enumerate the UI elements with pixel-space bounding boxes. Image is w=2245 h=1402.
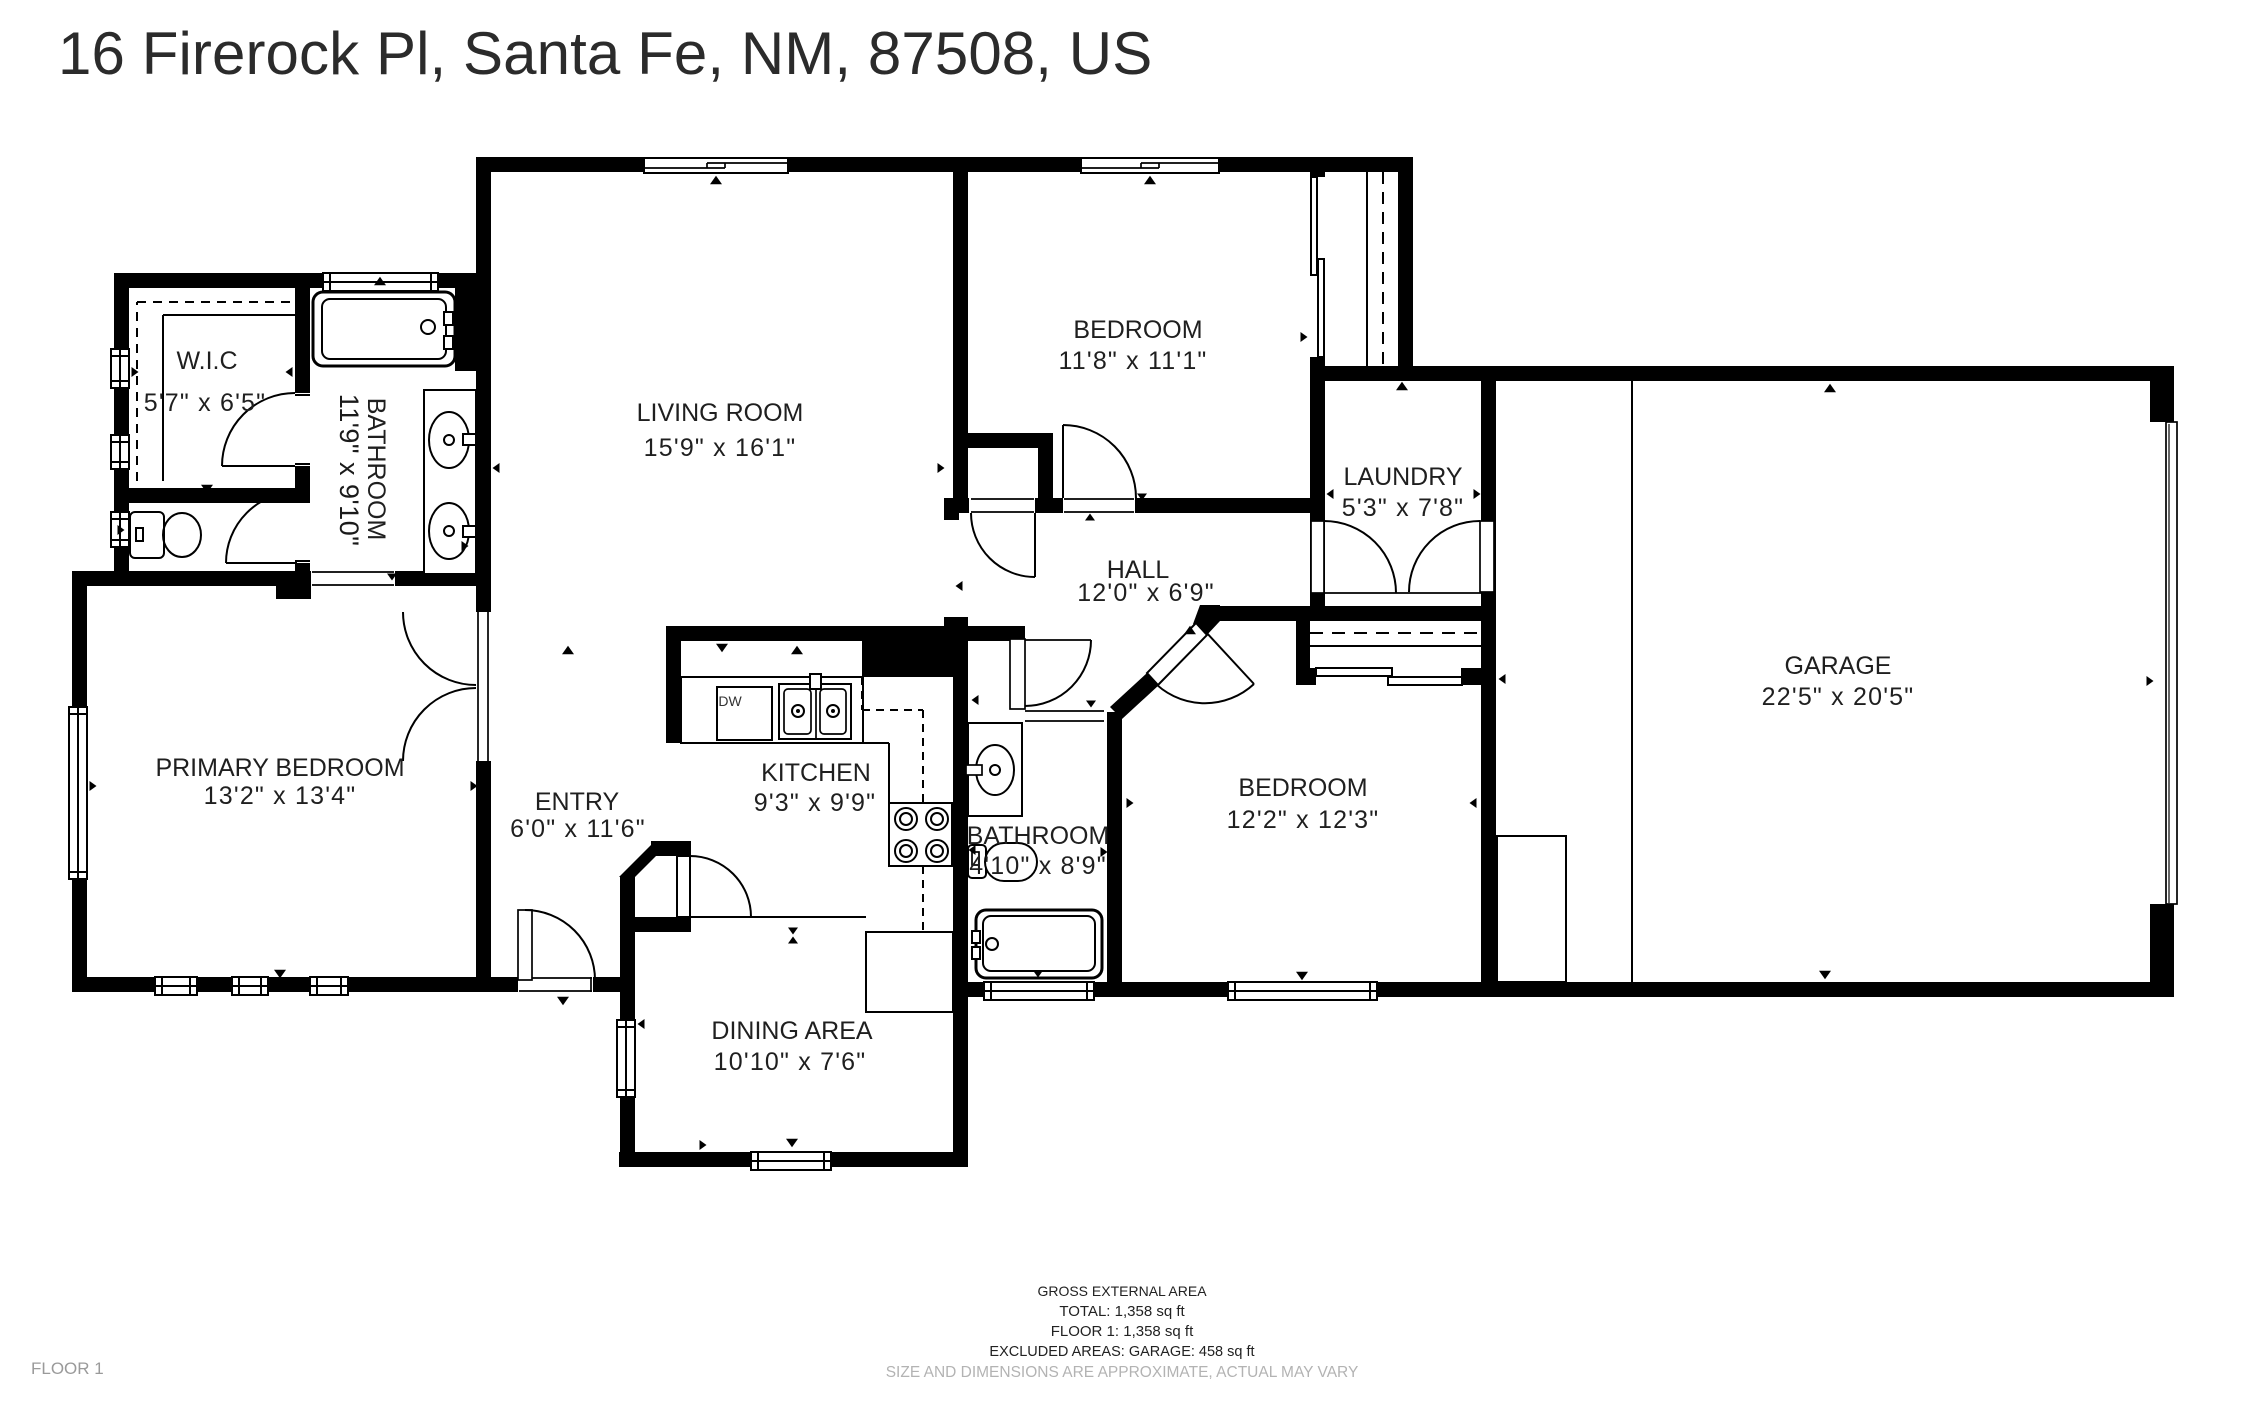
svg-text:DINING AREA: DINING AREA <box>711 1017 872 1045</box>
svg-text:FLOOR 1: 1,358 sq ft: FLOOR 1: 1,358 sq ft <box>1051 1323 1194 1340</box>
svg-text:5'3" x 7'8": 5'3" x 7'8" <box>1342 494 1465 522</box>
svg-text:16 Firerock Pl, Santa Fe, NM,: 16 Firerock Pl, Santa Fe, NM, 87508, US <box>58 20 1152 87</box>
svg-text:BEDROOM: BEDROOM <box>1073 316 1202 344</box>
svg-text:BEDROOM: BEDROOM <box>1238 774 1367 802</box>
svg-text:22'5" x 20'5": 22'5" x 20'5" <box>1762 683 1915 711</box>
svg-text:W.I.C: W.I.C <box>176 347 237 375</box>
svg-text:LIVING ROOM: LIVING ROOM <box>637 399 804 427</box>
svg-text:11'9" x 9'10": 11'9" x 9'10" <box>334 394 364 547</box>
svg-text:GROSS EXTERNAL AREA: GROSS EXTERNAL AREA <box>1037 1283 1207 1299</box>
svg-text:11'8" x 11'1": 11'8" x 11'1" <box>1059 347 1208 375</box>
svg-text:PRIMARY BEDROOM: PRIMARY BEDROOM <box>155 754 404 782</box>
svg-text:KITCHEN: KITCHEN <box>761 759 871 787</box>
svg-text:SIZE AND DIMENSIONS ARE APPROX: SIZE AND DIMENSIONS ARE APPROXIMATE, ACT… <box>886 1364 1359 1381</box>
svg-text:4'10" x 8'9": 4'10" x 8'9" <box>969 852 1107 880</box>
svg-text:ENTRY: ENTRY <box>535 788 620 816</box>
svg-text:15'9" x 16'1": 15'9" x 16'1" <box>644 434 797 462</box>
svg-text:12'2" x 12'3": 12'2" x 12'3" <box>1227 806 1380 834</box>
svg-text:13'2" x 13'4": 13'2" x 13'4" <box>204 782 357 810</box>
svg-text:6'0" x 11'6": 6'0" x 11'6" <box>510 815 646 843</box>
svg-text:TOTAL: 1,358 sq ft: TOTAL: 1,358 sq ft <box>1059 1303 1185 1320</box>
svg-text:10'10" x 7'6": 10'10" x 7'6" <box>714 1048 867 1076</box>
svg-text:5'7" x 6'5": 5'7" x 6'5" <box>144 389 267 417</box>
svg-text:DW: DW <box>718 693 742 709</box>
svg-text:BATHROOM: BATHROOM <box>967 822 1110 850</box>
svg-text:EXCLUDED AREAS: GARAGE: 458 sq: EXCLUDED AREAS: GARAGE: 458 sq ft <box>989 1344 1254 1360</box>
svg-text:GARAGE: GARAGE <box>1785 652 1892 680</box>
svg-text:FLOOR 1: FLOOR 1 <box>31 1359 104 1378</box>
svg-text:BATHROOM: BATHROOM <box>362 398 390 541</box>
svg-text:12'0" x 6'9": 12'0" x 6'9" <box>1077 579 1215 607</box>
svg-text:LAUNDRY: LAUNDRY <box>1343 463 1462 491</box>
svg-text:9'3" x 9'9": 9'3" x 9'9" <box>754 789 877 817</box>
